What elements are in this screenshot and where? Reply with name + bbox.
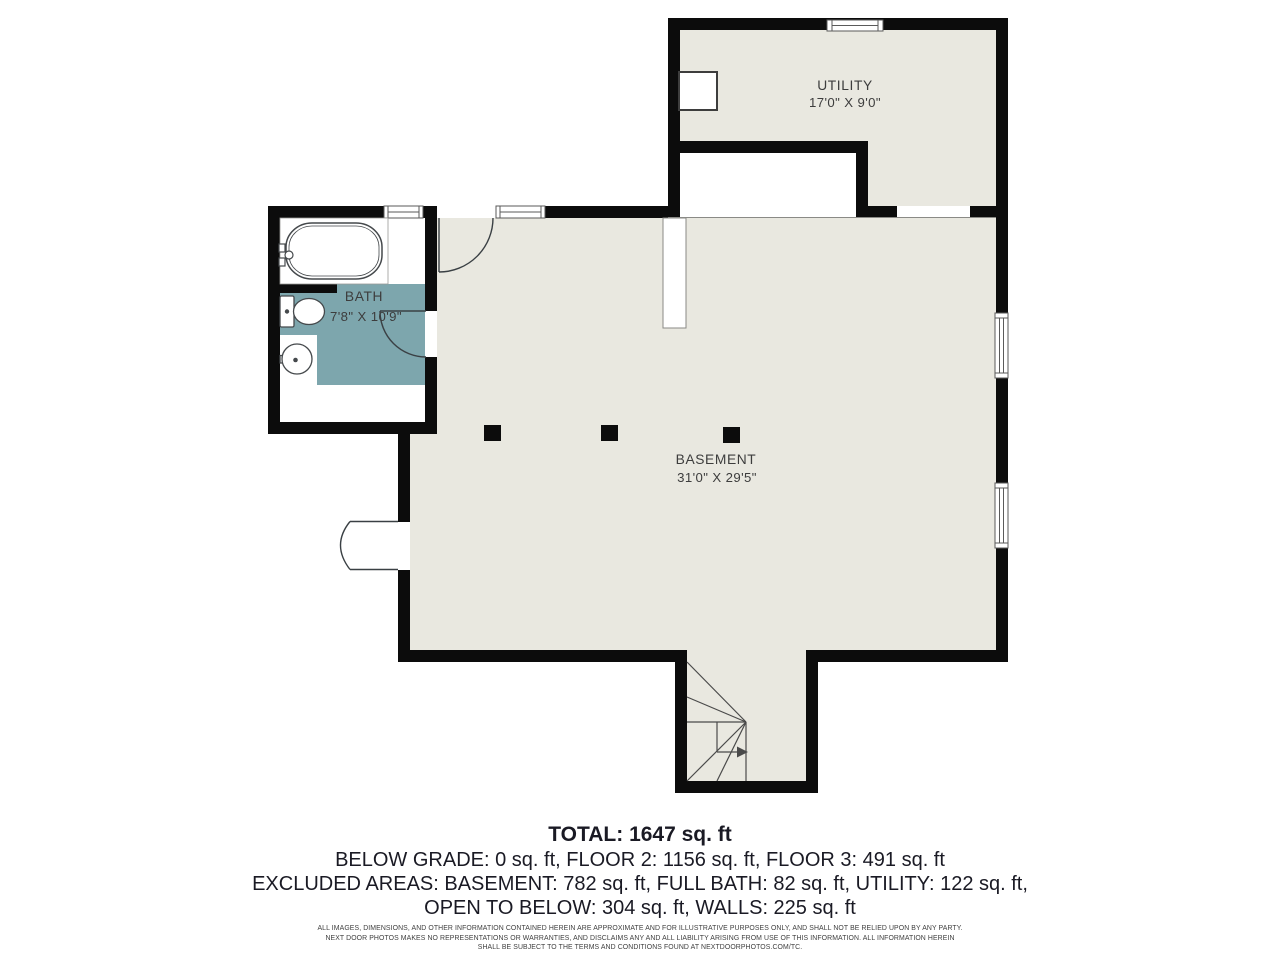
door-opening: [425, 311, 437, 357]
basement-floor: [404, 212, 996, 787]
room-label-utility: UTILITY: [817, 78, 873, 93]
window: [384, 206, 423, 218]
column: [601, 425, 618, 441]
window: [827, 20, 883, 31]
wall: [675, 781, 818, 793]
floorplan-page: UTILITY 17'0" X 9'0" BATH 7'8" X 10'9" B…: [0, 0, 1280, 960]
total-area-text: TOTAL: 1647 sq. ft: [0, 822, 1280, 848]
bathtub-icon: [279, 218, 388, 284]
room-dims-bath: 7'8" X 10'9": [330, 309, 402, 324]
utility-appliance-icon: [679, 72, 717, 110]
floor-areas: [276, 24, 1002, 787]
open-to-below-area: [680, 153, 856, 218]
floorplan-drawing: UTILITY 17'0" X 9'0" BATH 7'8" X 10'9" B…: [0, 0, 1280, 822]
door-swing: [341, 522, 399, 570]
floors-area-text: BELOW GRADE: 0 sq. ft, FLOOR 2: 1156 sq.…: [0, 848, 1280, 872]
window: [995, 313, 1008, 378]
wall: [668, 18, 680, 218]
wall: [398, 650, 675, 662]
wall: [268, 206, 384, 218]
wall: [806, 650, 1008, 662]
wall: [970, 206, 1008, 218]
column: [484, 425, 501, 441]
disclaimer-text: ALL IMAGES, DIMENSIONS, AND OTHER INFORM…: [0, 924, 1280, 953]
wall-tub-partition: [268, 283, 337, 293]
wall: [425, 357, 437, 434]
wall: [675, 650, 687, 793]
excluded-areas-text-2: OPEN TO BELOW: 304 sq. ft, WALLS: 225 sq…: [0, 896, 1280, 920]
wall: [425, 206, 437, 311]
toilet-icon: [280, 296, 325, 327]
wall: [806, 650, 818, 793]
room-label-bath: BATH: [345, 289, 383, 304]
room-dims-utility: 17'0" X 9'0": [809, 95, 881, 110]
wall: [398, 570, 410, 662]
disclaimer-line: ALL IMAGES, DIMENSIONS, AND OTHER INFORM…: [0, 924, 1280, 934]
door-opening: [398, 522, 410, 570]
wall: [268, 206, 280, 434]
disclaimer-line: SHALL BE SUBJECT TO THE TERMS AND CONDIT…: [0, 943, 1280, 953]
wall: [545, 206, 680, 218]
excluded-areas-text: EXCLUDED AREAS: BASEMENT: 782 sq. ft, FU…: [0, 872, 1280, 896]
door-opening: [437, 206, 496, 218]
window: [496, 206, 545, 218]
area-summary: TOTAL: 1647 sq. ft BELOW GRADE: 0 sq. ft…: [0, 822, 1280, 953]
room-dims-basement: 31'0" X 29'5": [677, 470, 757, 485]
window: [995, 483, 1008, 548]
column: [723, 427, 740, 443]
room-label-basement: BASEMENT: [676, 452, 757, 467]
disclaimer-line: NEXT DOOR PHOTOS MAKES NO REPRESENTATION…: [0, 934, 1280, 944]
door-opening: [897, 206, 970, 218]
half-wall-railing: [663, 218, 686, 328]
wall: [668, 141, 868, 153]
wall: [268, 422, 437, 434]
wall: [398, 430, 410, 522]
wall: [856, 206, 897, 218]
